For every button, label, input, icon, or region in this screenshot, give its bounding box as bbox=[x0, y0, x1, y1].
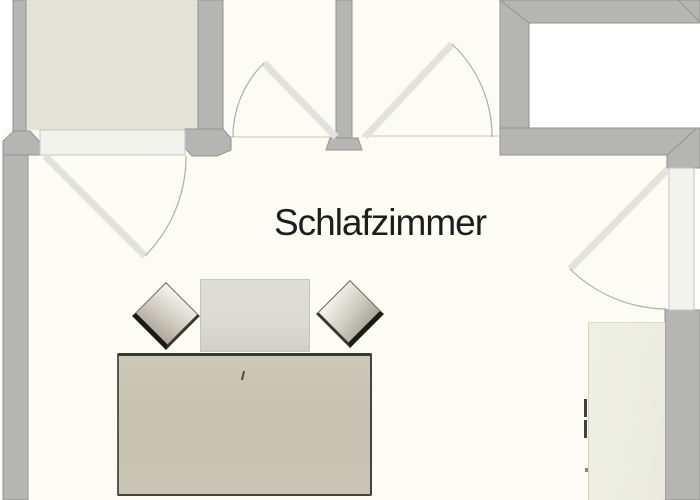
wall-divider-middle bbox=[336, 0, 352, 138]
bed[interactable] bbox=[117, 353, 372, 496]
floor-plan: Schlafzimmer bbox=[0, 0, 700, 500]
wardrobe-handle-bottom bbox=[584, 420, 587, 438]
wall-corner-mid-left bbox=[185, 129, 231, 156]
wardrobe-hinge-dot bbox=[585, 468, 588, 472]
wall-divider-right bbox=[500, 0, 529, 136]
wall-top-left-room-left bbox=[13, 0, 26, 131]
wall-top-right-top bbox=[500, 0, 700, 23]
wall-divider-middle-foot bbox=[326, 138, 362, 150]
threshold-bedroom-right bbox=[669, 168, 694, 310]
floor-room-top-left bbox=[26, 0, 198, 130]
room-label: Schlafzimmer bbox=[274, 202, 486, 244]
wall-bedroom-left bbox=[3, 155, 28, 500]
wardrobe[interactable] bbox=[588, 322, 665, 500]
floor-room-top-right bbox=[529, 23, 700, 128]
wall-top-left-room-right bbox=[198, 0, 223, 129]
wall-bedroom-right bbox=[665, 310, 700, 500]
threshold-bedroom-top bbox=[40, 130, 185, 155]
headboard-cushion[interactable] bbox=[200, 279, 310, 352]
wardrobe-handle-top bbox=[584, 399, 587, 417]
